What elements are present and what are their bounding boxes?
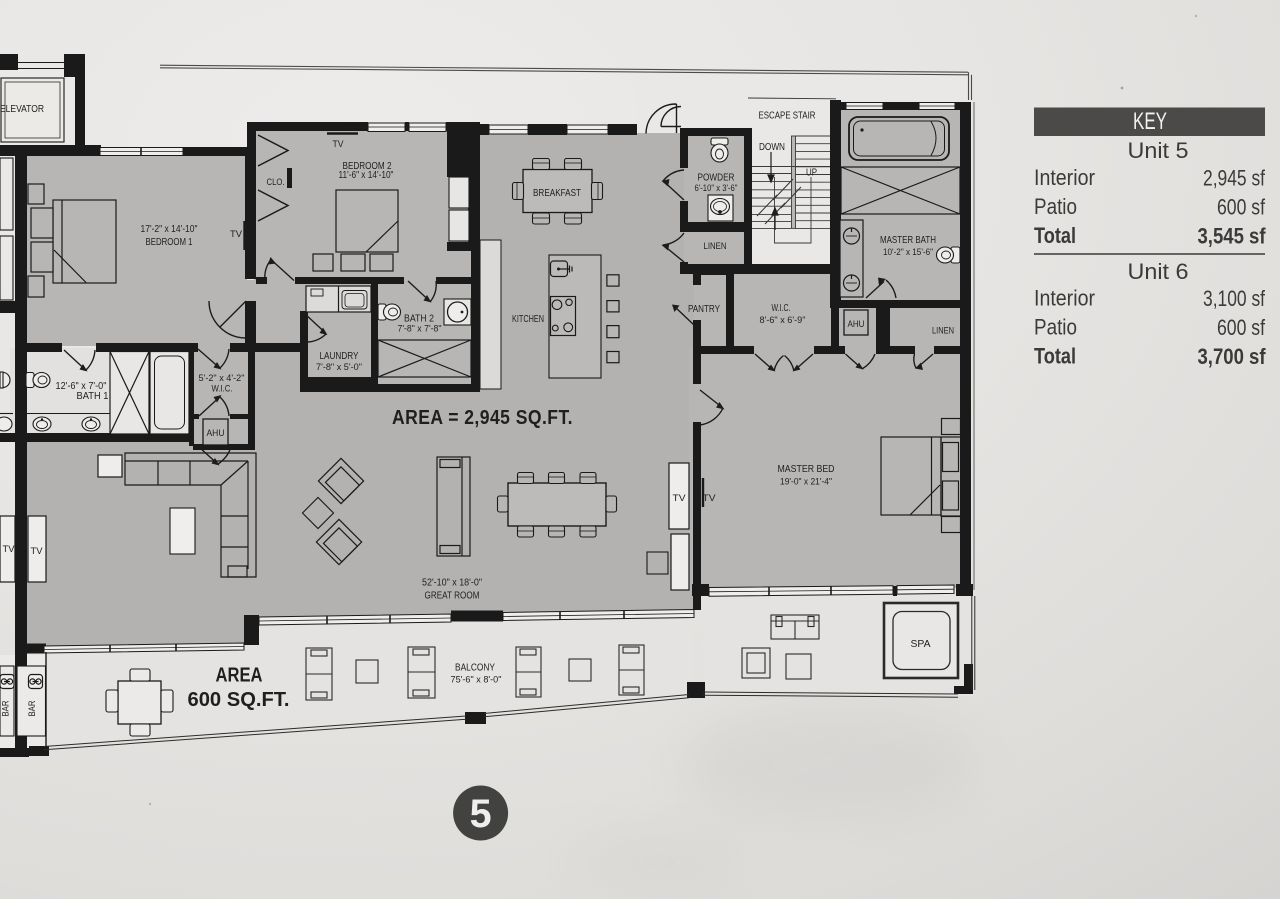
- svg-text:7'-8" x 7'-8": 7'-8" x 7'-8": [398, 324, 442, 335]
- svg-text:W.I.C.: W.I.C.: [212, 384, 233, 395]
- svg-text:TV: TV: [3, 544, 16, 555]
- svg-text:Patio: Patio: [1034, 194, 1077, 219]
- svg-text:3,545 sf: 3,545 sf: [1198, 224, 1267, 249]
- svg-text:POWDER: POWDER: [698, 173, 735, 184]
- svg-text:BALCONY: BALCONY: [455, 663, 495, 674]
- svg-text:MASTER BED: MASTER BED: [778, 464, 835, 475]
- svg-text:BEDROOM 1: BEDROOM 1: [146, 237, 193, 248]
- svg-text:SPA: SPA: [911, 639, 931, 650]
- svg-text:75'-6" x 8'-0": 75'-6" x 8'-0": [451, 675, 502, 686]
- svg-text:TV: TV: [673, 493, 687, 504]
- svg-text:ESCAPE STAIR: ESCAPE STAIR: [759, 110, 816, 122]
- svg-text:Total: Total: [1034, 223, 1076, 248]
- svg-text:BREAKFAST: BREAKFAST: [533, 188, 581, 199]
- svg-text:LAUNDRY: LAUNDRY: [320, 351, 359, 362]
- svg-text:52'-10" x 18'-0": 52'-10" x 18'-0": [422, 578, 482, 589]
- svg-text:TV: TV: [31, 546, 44, 557]
- svg-text:Interior: Interior: [1034, 286, 1095, 311]
- svg-text:DOWN: DOWN: [759, 142, 785, 153]
- svg-text:KITCHEN: KITCHEN: [512, 314, 544, 325]
- svg-text:AHU: AHU: [848, 319, 865, 330]
- svg-text:600 sf: 600 sf: [1217, 195, 1266, 220]
- svg-text:BATH 1: BATH 1: [77, 391, 109, 402]
- svg-text:5: 5: [470, 792, 492, 836]
- svg-text:AREA = 2,945 SQ.FT.: AREA = 2,945 SQ.FT.: [392, 407, 573, 429]
- svg-text:Unit 5: Unit 5: [1128, 138, 1189, 163]
- svg-text:ELEVATOR: ELEVATOR: [0, 103, 44, 115]
- svg-text:TV: TV: [703, 493, 717, 504]
- svg-text:Unit 6: Unit 6: [1128, 259, 1189, 284]
- svg-text:3,100 sf: 3,100 sf: [1203, 286, 1266, 311]
- svg-text:GREAT ROOM: GREAT ROOM: [425, 591, 480, 602]
- svg-text:PANTRY: PANTRY: [688, 304, 720, 315]
- svg-text:10'-2" x 15'-6": 10'-2" x 15'-6": [883, 247, 933, 258]
- svg-text:600 SQ.FT.: 600 SQ.FT.: [188, 689, 290, 711]
- svg-text:3,700 sf: 3,700 sf: [1198, 344, 1267, 369]
- svg-text:5'-2" x 4'-2": 5'-2" x 4'-2": [199, 373, 245, 384]
- svg-text:MASTER BATH: MASTER BATH: [880, 235, 936, 246]
- svg-text:11'-6" x 14'-10": 11'-6" x 14'-10": [339, 170, 394, 181]
- svg-text:AREA: AREA: [216, 665, 263, 687]
- svg-text:600 sf: 600 sf: [1217, 315, 1266, 340]
- svg-text:TV: TV: [333, 139, 345, 150]
- svg-text:LINEN: LINEN: [932, 326, 954, 336]
- svg-text:Total: Total: [1034, 344, 1076, 369]
- svg-text:19'-0" x 21'-4": 19'-0" x 21'-4": [780, 477, 832, 488]
- svg-text:7'-8" x 5'-0": 7'-8" x 5'-0": [316, 362, 362, 373]
- svg-text:LINEN: LINEN: [704, 241, 727, 252]
- svg-text:Interior: Interior: [1034, 165, 1095, 190]
- svg-text:BAR: BAR: [27, 700, 38, 716]
- svg-text:CLO.: CLO.: [267, 177, 285, 187]
- svg-text:BAR: BAR: [1, 700, 12, 716]
- svg-text:2,945 sf: 2,945 sf: [1203, 166, 1266, 191]
- svg-text:6'-10" x 3'-6": 6'-10" x 3'-6": [695, 183, 738, 194]
- svg-text:8'-6" x 6'-9": 8'-6" x 6'-9": [760, 315, 806, 326]
- svg-text:TV: TV: [230, 229, 243, 240]
- svg-text:AHU: AHU: [207, 428, 225, 439]
- svg-text:Patio: Patio: [1034, 315, 1077, 340]
- svg-text:UP: UP: [806, 168, 817, 179]
- svg-text:17'-2" x 14'-10": 17'-2" x 14'-10": [141, 224, 198, 235]
- svg-text:W.I.C.: W.I.C.: [772, 303, 791, 314]
- svg-text:KEY: KEY: [1133, 108, 1167, 135]
